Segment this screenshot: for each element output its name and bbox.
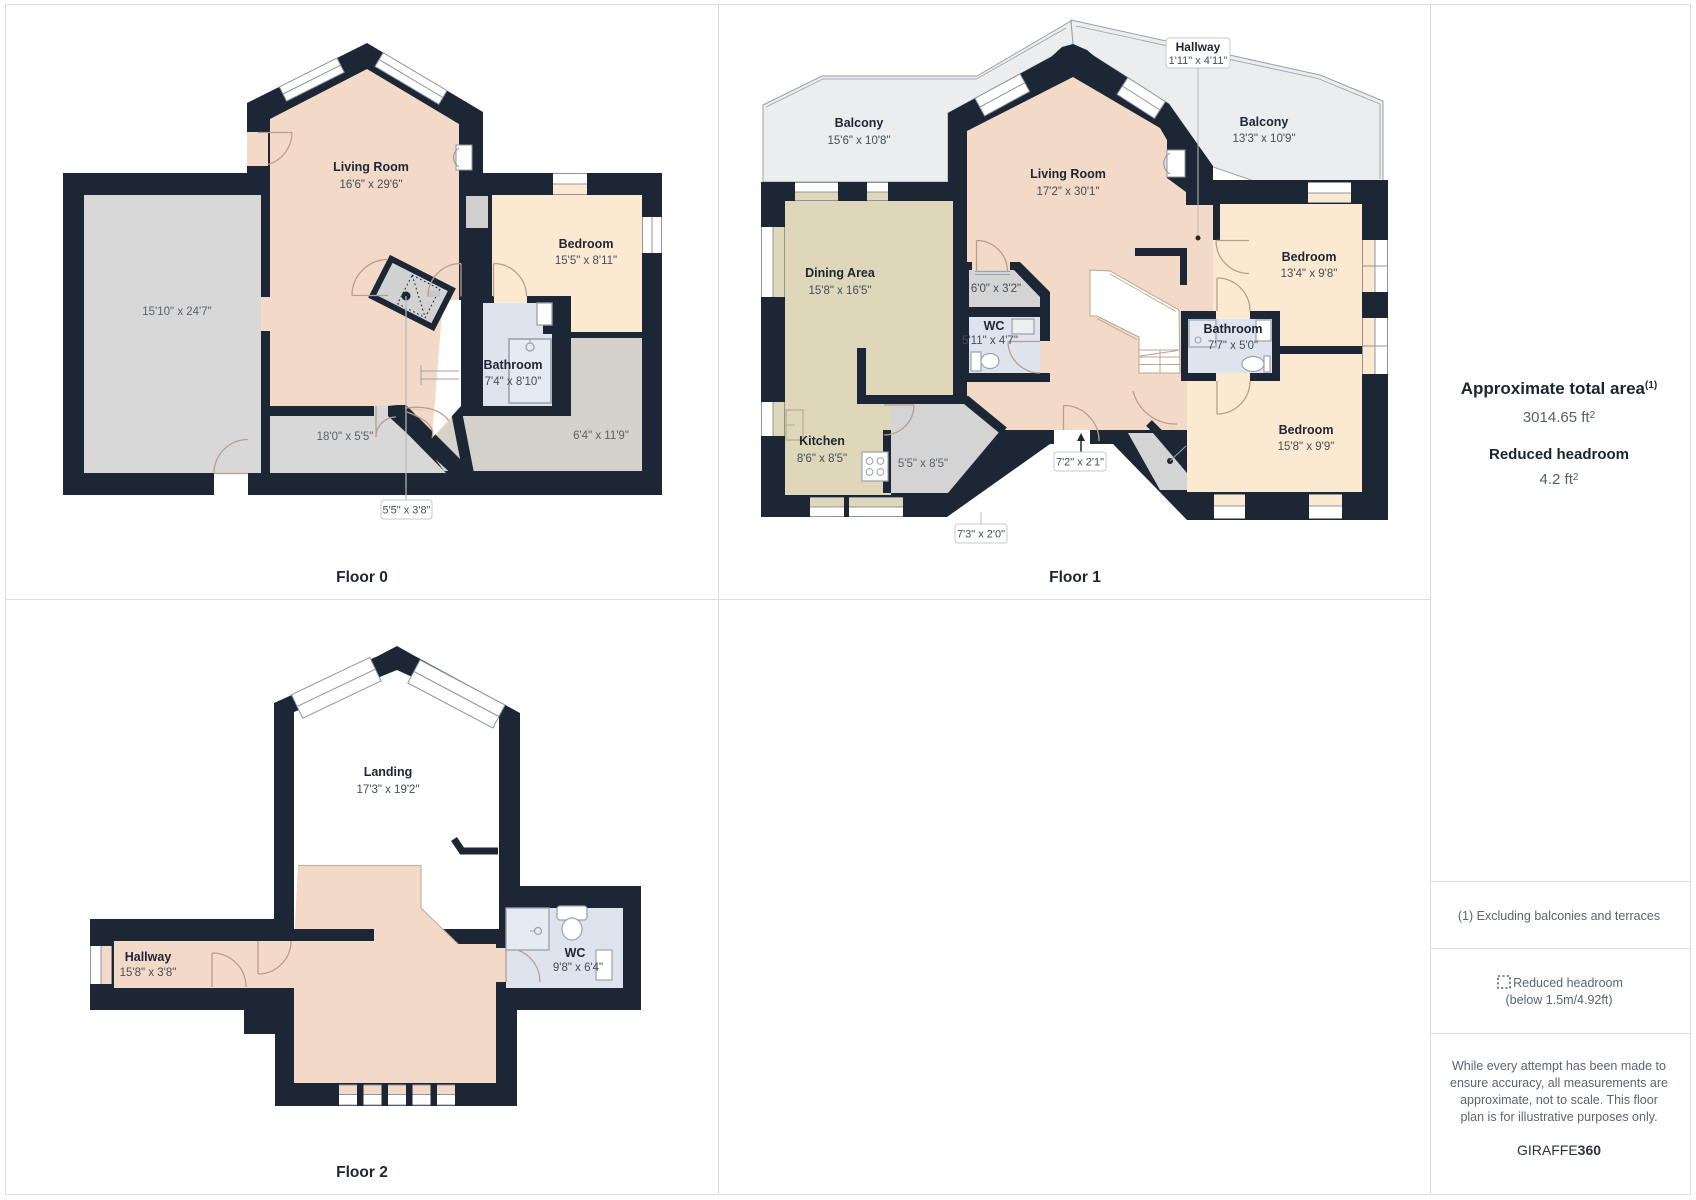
svg-text:16'6" x 29'6": 16'6" x 29'6" — [339, 179, 402, 191]
svg-text:17'2" x 30'1": 17'2" x 30'1" — [1036, 186, 1099, 198]
svg-text:15'8" x 16'5": 15'8" x 16'5" — [808, 285, 871, 297]
svg-text:Bedroom: Bedroom — [1282, 250, 1337, 264]
svg-text:18'0" x 5'5": 18'0" x 5'5" — [317, 431, 374, 443]
svg-text:WC: WC — [565, 946, 586, 960]
svg-text:7'2" x 2'1": 7'2" x 2'1" — [1056, 457, 1104, 469]
svg-text:Living Room: Living Room — [333, 160, 409, 174]
svg-text:Dining Area: Dining Area — [805, 266, 876, 280]
svg-text:Bedroom: Bedroom — [1279, 423, 1334, 437]
svg-text:Kitchen: Kitchen — [799, 434, 845, 448]
svg-text:13'4" x 9'8": 13'4" x 9'8" — [1281, 268, 1338, 280]
svg-text:approximate, not to scale. Thi: approximate, not to scale. This floor — [1460, 1093, 1658, 1107]
svg-text:Floor 0: Floor 0 — [336, 569, 388, 586]
svg-text:15'6" x 10'8": 15'6" x 10'8" — [827, 135, 890, 147]
svg-text:15'8" x 9'9": 15'8" x 9'9" — [1278, 441, 1335, 453]
svg-text:GIRAFFE360: GIRAFFE360 — [1517, 1142, 1601, 1158]
svg-text:Floor 2: Floor 2 — [336, 1164, 388, 1181]
svg-text:15'10" x 24'7": 15'10" x 24'7" — [142, 306, 211, 318]
svg-text:5'5" x 3'8": 5'5" x 3'8" — [382, 505, 430, 517]
svg-text:7'4" x 8'10": 7'4" x 8'10" — [485, 376, 542, 388]
svg-text:Reduced headroom: Reduced headroom — [1513, 976, 1623, 990]
svg-text:9'8" x 6'4": 9'8" x 6'4" — [553, 962, 603, 974]
svg-text:While every attempt has been m: While every attempt has been made to — [1452, 1059, 1666, 1073]
svg-text:Floor 1: Floor 1 — [1049, 569, 1101, 586]
svg-text:1'11" x 4'11": 1'11" x 4'11" — [1169, 55, 1228, 67]
svg-text:15'5" x 8'11": 15'5" x 8'11" — [555, 255, 617, 267]
svg-text:(below 1.5m/4.92ft): (below 1.5m/4.92ft) — [1506, 993, 1613, 1007]
svg-text:Balcony: Balcony — [1240, 115, 1289, 129]
svg-text:4.2 ft2: 4.2 ft2 — [1540, 471, 1579, 488]
svg-text:Hallway: Hallway — [125, 950, 172, 964]
svg-text:3014.65 ft2: 3014.65 ft2 — [1523, 409, 1596, 426]
svg-text:6'4" x 11'9": 6'4" x 11'9" — [573, 430, 629, 442]
svg-text:7'3" x 2'0": 7'3" x 2'0" — [957, 529, 1005, 541]
svg-text:7'7" x 5'0": 7'7" x 5'0" — [1208, 340, 1258, 352]
svg-text:Landing: Landing — [364, 765, 413, 779]
svg-text:Bathroom: Bathroom — [1203, 322, 1262, 336]
svg-text:17'3" x 19'2": 17'3" x 19'2" — [356, 784, 419, 796]
svg-text:6'0" x 3'2": 6'0" x 3'2" — [971, 283, 1021, 295]
svg-text:ensure accuracy, all measureme: ensure accuracy, all measurements are — [1450, 1076, 1668, 1090]
svg-text:Bedroom: Bedroom — [559, 237, 614, 251]
svg-text:Approximate total area(1): Approximate total area(1) — [1461, 379, 1657, 398]
svg-text:Living Room: Living Room — [1030, 167, 1106, 181]
svg-text:Reduced headroom: Reduced headroom — [1489, 446, 1629, 463]
svg-text:15'8" x 3'8": 15'8" x 3'8" — [120, 967, 177, 979]
svg-text:WC: WC — [984, 319, 1005, 333]
svg-text:(1) Excluding balconies and te: (1) Excluding balconies and terraces — [1458, 909, 1660, 923]
svg-text:5'5" x 8'5": 5'5" x 8'5" — [898, 458, 948, 470]
svg-text:plan is for illustrative purpo: plan is for illustrative purposes only. — [1460, 1110, 1657, 1124]
svg-text:Hallway: Hallway — [1176, 40, 1221, 54]
svg-text:8'6" x 8'5": 8'6" x 8'5" — [797, 453, 847, 465]
svg-text:5'11" x 4'7": 5'11" x 4'7" — [962, 335, 1018, 347]
svg-text:Balcony: Balcony — [835, 116, 884, 130]
svg-text:Bathroom: Bathroom — [483, 358, 542, 372]
svg-text:13'3" x 10'9": 13'3" x 10'9" — [1232, 133, 1295, 145]
